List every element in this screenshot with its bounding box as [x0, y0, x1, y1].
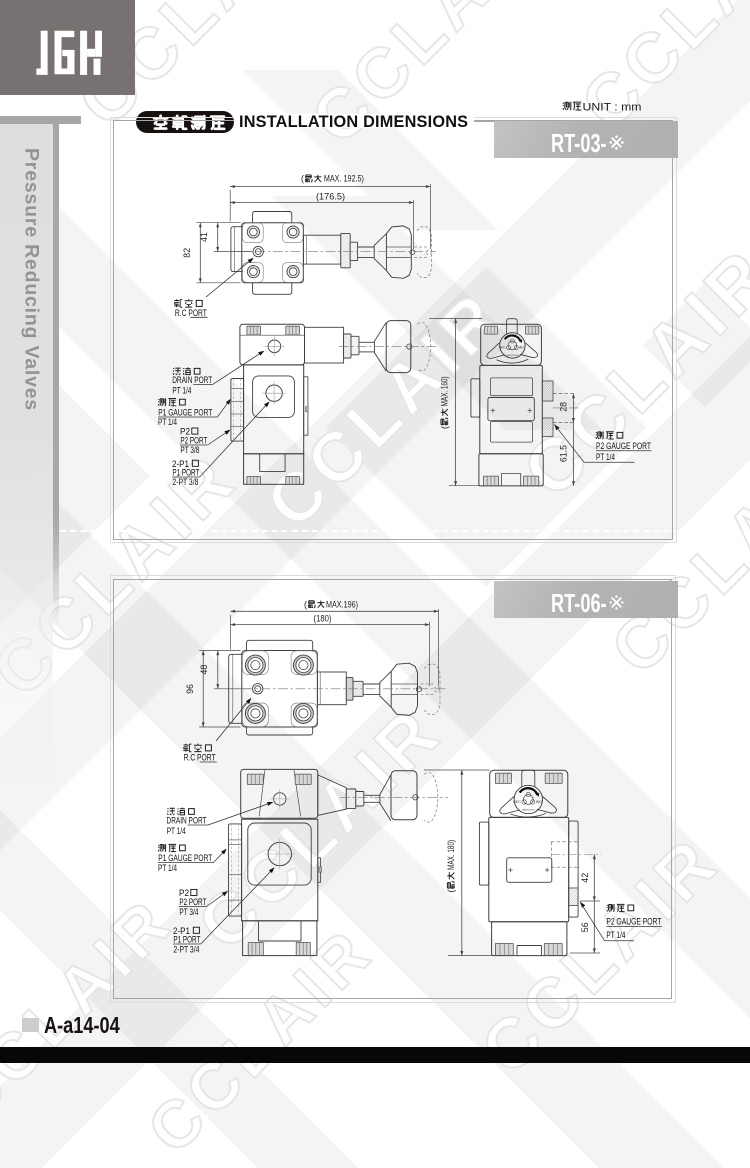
svg-text:42: 42 [580, 873, 590, 883]
svg-text:PT 1/4: PT 1/4 [158, 417, 177, 427]
svg-text:P1 GAUGE PORT: P1 GAUGE PORT [158, 407, 212, 417]
svg-text:(: ( [301, 174, 304, 184]
svg-text:INC: INC [536, 800, 543, 804]
svg-text:adjustment: adjustment [522, 807, 535, 811]
svg-text:PT 1/4: PT 1/4 [172, 386, 191, 396]
svg-text:56: 56 [580, 922, 590, 932]
svg-text:PT 1/4: PT 1/4 [596, 452, 615, 462]
svg-text:MAX. 160): MAX. 160) [440, 376, 450, 406]
svg-text:DEC: DEC [513, 800, 521, 804]
svg-text:(: ( [446, 890, 456, 893]
svg-text:(: ( [304, 599, 307, 609]
svg-text:P1 GAUGE PORT: P1 GAUGE PORT [158, 853, 212, 863]
svg-text:PT 1/4: PT 1/4 [158, 863, 177, 873]
svg-text:48: 48 [199, 665, 209, 675]
svg-text:61.5: 61.5 [559, 445, 569, 462]
svg-text:(180): (180) [314, 613, 332, 623]
svg-text:2-PT 3/8: 2-PT 3/8 [172, 477, 198, 487]
svg-text:R.C PORT: R.C PORT [175, 308, 207, 318]
svg-text:P2 GAUGE PORT: P2 GAUGE PORT [596, 441, 651, 451]
svg-text:P2 PORT: P2 PORT [180, 435, 207, 445]
svg-text:R.C PORT: R.C PORT [184, 753, 216, 763]
svg-text:PT 3/8: PT 3/8 [180, 445, 199, 455]
svg-text:INC: INC [519, 346, 525, 350]
svg-text:MAX.196): MAX.196) [326, 599, 358, 609]
svg-text:P2 GAUGE PORT: P2 GAUGE PORT [606, 917, 661, 927]
svg-text:(: ( [440, 426, 450, 429]
svg-text:(176.5): (176.5) [316, 191, 345, 201]
svg-text:UNIT : mm: UNIT : mm [583, 102, 642, 114]
svg-text:P2 PORT: P2 PORT [179, 897, 206, 907]
svg-text:PT 3/4: PT 3/4 [179, 907, 198, 917]
svg-text:28: 28 [559, 402, 569, 412]
svg-text:96: 96 [185, 684, 195, 694]
svg-text:41: 41 [199, 232, 209, 242]
svg-text:DRAIN PORT: DRAIN PORT [172, 375, 212, 385]
svg-text:MAX. 192.5): MAX. 192.5) [324, 174, 364, 184]
svg-text:2-PT 3/4: 2-PT 3/4 [173, 945, 199, 955]
svg-text:DRAIN PORT: DRAIN PORT [167, 815, 207, 825]
svg-text:GEC: GEC [499, 346, 507, 350]
svg-text:PT 1/4: PT 1/4 [167, 826, 186, 836]
svg-text:82: 82 [182, 248, 192, 258]
svg-text:PT 1/4: PT 1/4 [606, 930, 625, 940]
svg-text:adjustment: adjustment [507, 354, 519, 357]
svg-text:P1 PORT: P1 PORT [173, 934, 200, 944]
svg-text:MAX. 180): MAX. 180) [446, 840, 456, 870]
